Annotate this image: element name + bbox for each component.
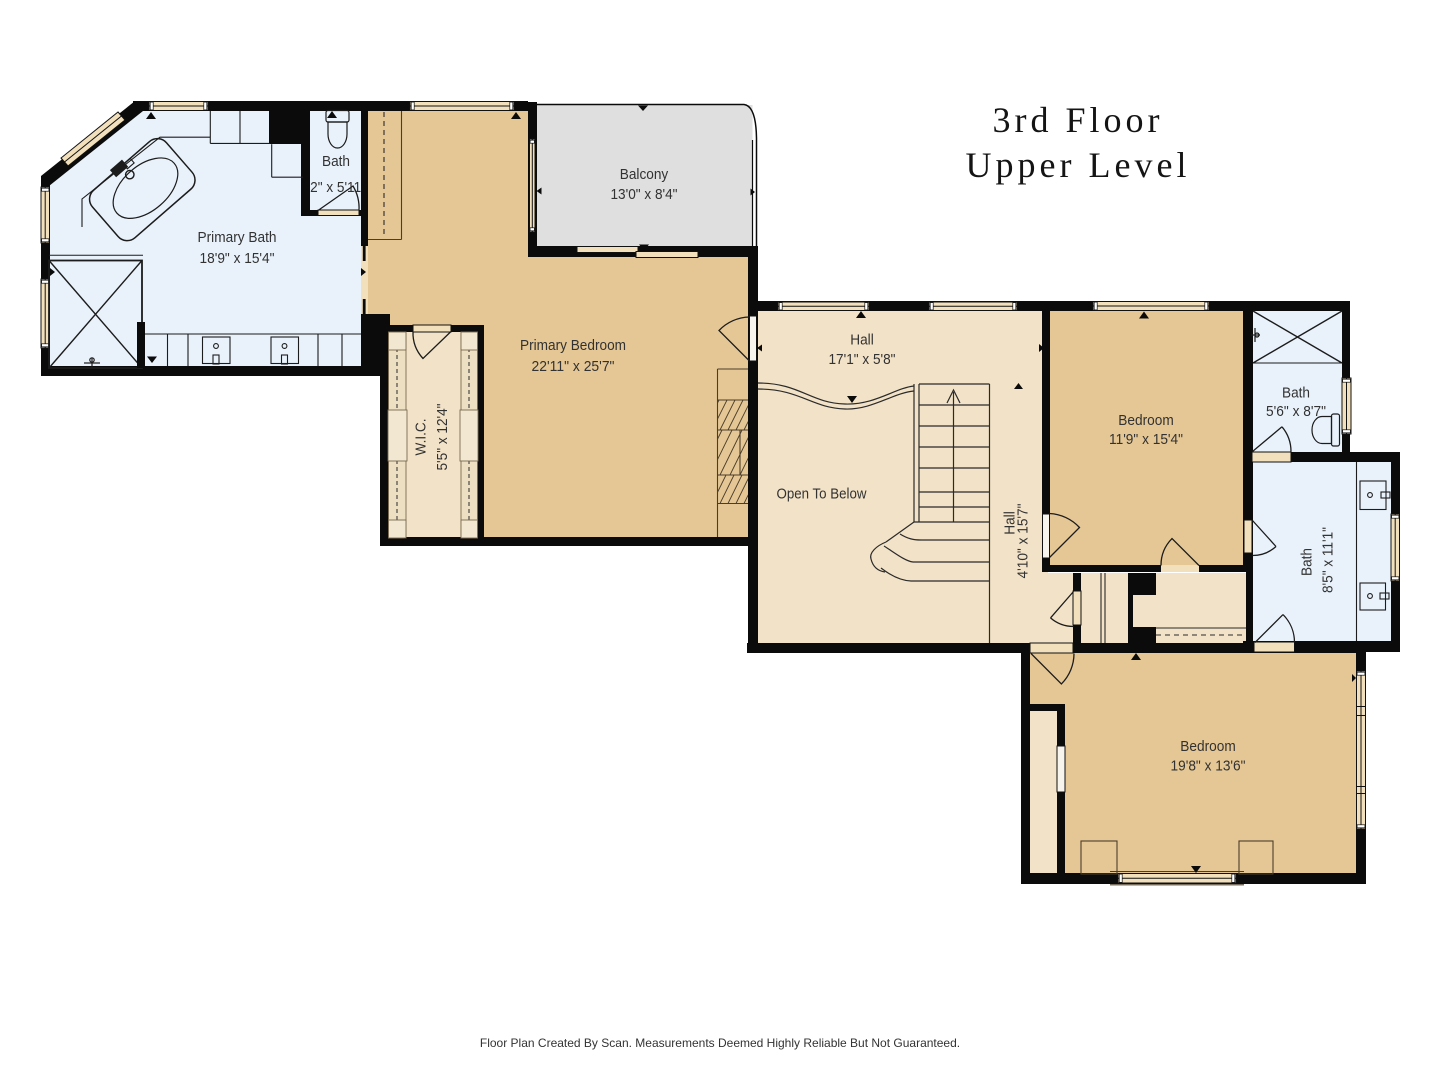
svg-text:Primary Bedroom: Primary Bedroom [520,337,626,354]
svg-text:Open To Below: Open To Below [777,486,867,503]
svg-text:19'8" x 13'6": 19'8" x 13'6" [1171,758,1246,775]
svg-text:Bath: Bath [1299,548,1316,576]
svg-text:11'9" x 15'4": 11'9" x 15'4" [1109,431,1183,448]
svg-text:5'6" x 8'7": 5'6" x 8'7" [1266,403,1326,420]
svg-text:17'1" x 5'8": 17'1" x 5'8" [829,351,896,368]
svg-text:Bath: Bath [1282,385,1310,402]
svg-text:Primary Bath: Primary Bath [198,229,277,246]
svg-text:22'11" x 25'7": 22'11" x 25'7" [532,358,615,375]
svg-text:Hall: Hall [850,332,874,349]
svg-text:W.I.C.: W.I.C. [413,419,430,456]
svg-text:Bedroom: Bedroom [1180,738,1236,755]
svg-text:Bedroom: Bedroom [1118,412,1174,429]
svg-text:4'10" x 15'7": 4'10" x 15'7" [1015,504,1032,579]
svg-text:Bath: Bath [322,153,350,170]
svg-text:18'9" x 15'4": 18'9" x 15'4" [200,250,275,267]
svg-text:5'5" x 12'4": 5'5" x 12'4" [434,404,451,471]
svg-text:Balcony: Balcony [620,166,669,183]
svg-text:8'5" x 11'1": 8'5" x 11'1" [1320,527,1337,593]
svg-text:13'0" x 8'4": 13'0" x 8'4" [611,186,678,203]
